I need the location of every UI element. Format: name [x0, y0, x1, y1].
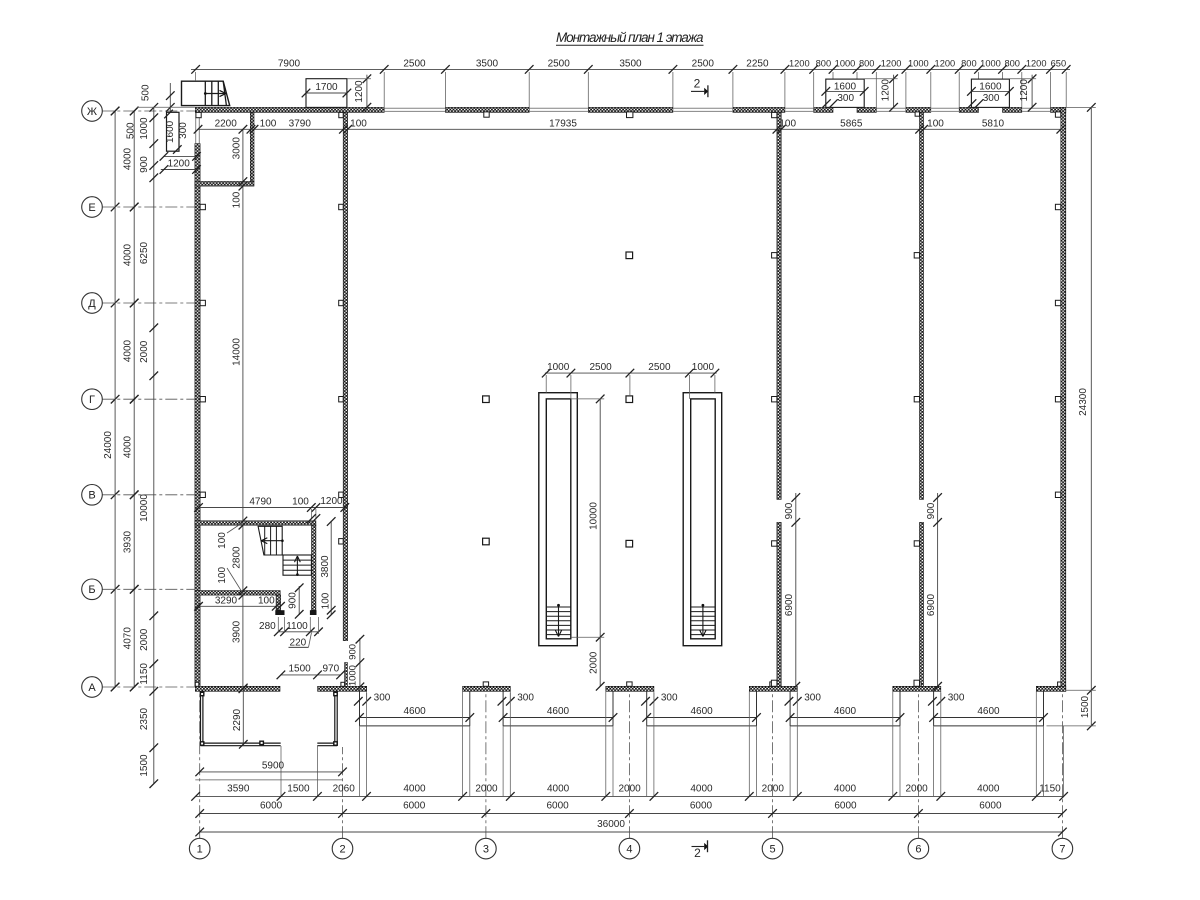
svg-text:1600: 1600	[979, 81, 1002, 92]
svg-text:2: 2	[694, 77, 701, 91]
svg-text:100: 100	[258, 595, 275, 606]
svg-text:3590: 3590	[227, 784, 250, 795]
svg-text:100: 100	[779, 118, 796, 129]
svg-text:Монтажный план 1 этажа: Монтажный план 1 этажа	[556, 30, 704, 45]
svg-text:100: 100	[292, 497, 309, 508]
svg-text:1200: 1200	[789, 58, 810, 68]
svg-text:2000: 2000	[139, 628, 150, 651]
svg-text:3930: 3930	[122, 530, 133, 553]
svg-text:800: 800	[961, 58, 977, 68]
svg-text:900: 900	[287, 592, 298, 609]
svg-text:3900: 3900	[232, 620, 243, 643]
svg-text:4000: 4000	[834, 784, 857, 795]
svg-text:500: 500	[126, 122, 137, 139]
svg-text:А: А	[88, 682, 96, 694]
svg-text:100: 100	[232, 191, 243, 208]
svg-text:14000: 14000	[232, 338, 243, 366]
svg-text:4600: 4600	[403, 706, 426, 717]
svg-text:4000: 4000	[122, 243, 133, 266]
svg-text:1000: 1000	[692, 362, 715, 373]
svg-text:970: 970	[322, 664, 339, 675]
svg-text:1200: 1200	[881, 79, 892, 102]
svg-text:6000: 6000	[979, 801, 1002, 812]
svg-text:6: 6	[915, 843, 921, 855]
svg-text:900: 900	[347, 644, 358, 660]
svg-text:2800: 2800	[232, 546, 243, 569]
svg-text:1500: 1500	[288, 664, 311, 675]
svg-text:1200: 1200	[881, 58, 902, 68]
svg-text:100: 100	[350, 118, 367, 129]
svg-text:4070: 4070	[122, 627, 133, 650]
svg-text:1200: 1200	[935, 58, 956, 68]
svg-text:1500: 1500	[1080, 695, 1091, 718]
svg-text:800: 800	[1004, 58, 1020, 68]
svg-text:300: 300	[517, 693, 534, 704]
svg-text:2000: 2000	[905, 784, 928, 795]
svg-text:1700: 1700	[315, 82, 338, 93]
svg-text:220: 220	[290, 637, 307, 648]
svg-text:3500: 3500	[619, 58, 642, 69]
svg-text:2500: 2500	[692, 58, 715, 69]
svg-text:5900: 5900	[262, 760, 285, 771]
svg-text:2500: 2500	[648, 362, 671, 373]
svg-text:4000: 4000	[403, 784, 426, 795]
svg-text:800: 800	[859, 58, 875, 68]
svg-text:100: 100	[260, 118, 277, 129]
svg-text:3: 3	[483, 843, 489, 855]
svg-text:1100: 1100	[286, 621, 308, 632]
svg-text:6000: 6000	[834, 801, 857, 812]
svg-text:4000: 4000	[977, 784, 1000, 795]
svg-text:2: 2	[339, 843, 345, 855]
svg-text:1500: 1500	[287, 784, 310, 795]
svg-text:Е: Е	[88, 202, 95, 214]
svg-text:100: 100	[320, 592, 331, 609]
svg-text:900: 900	[139, 156, 150, 173]
svg-text:2: 2	[694, 846, 701, 860]
svg-text:300: 300	[661, 693, 678, 704]
svg-text:4000: 4000	[690, 784, 713, 795]
svg-text:900: 900	[784, 502, 795, 519]
svg-text:4000: 4000	[122, 339, 133, 362]
svg-text:1600: 1600	[834, 81, 857, 92]
svg-text:10000: 10000	[588, 502, 599, 530]
svg-text:300: 300	[948, 693, 965, 704]
svg-text:1200: 1200	[320, 496, 343, 507]
svg-text:1200: 1200	[354, 80, 365, 103]
svg-text:3290: 3290	[215, 595, 238, 606]
svg-text:2500: 2500	[548, 58, 571, 69]
svg-text:280: 280	[259, 621, 276, 632]
svg-text:2000: 2000	[762, 784, 785, 795]
svg-text:1500: 1500	[139, 754, 150, 777]
svg-text:2000: 2000	[475, 784, 498, 795]
svg-text:4600: 4600	[690, 706, 713, 717]
svg-text:Г: Г	[89, 394, 95, 406]
svg-text:100: 100	[927, 118, 944, 129]
svg-text:900: 900	[926, 502, 937, 519]
svg-text:3500: 3500	[476, 58, 499, 69]
svg-text:3800: 3800	[320, 555, 331, 578]
svg-text:4: 4	[626, 843, 632, 855]
svg-text:300: 300	[837, 93, 854, 104]
svg-text:6000: 6000	[690, 801, 713, 812]
svg-text:7: 7	[1059, 843, 1065, 855]
svg-text:650: 650	[1051, 58, 1067, 68]
svg-text:6250: 6250	[139, 241, 150, 264]
svg-text:500: 500	[141, 84, 152, 101]
svg-text:4600: 4600	[977, 706, 1000, 717]
svg-text:1150: 1150	[1039, 784, 1061, 795]
svg-text:1000: 1000	[139, 117, 150, 140]
svg-text:4790: 4790	[249, 497, 272, 508]
svg-text:4600: 4600	[547, 706, 570, 717]
svg-text:1150: 1150	[139, 663, 150, 685]
svg-text:3000: 3000	[232, 137, 243, 160]
svg-text:1000: 1000	[347, 665, 358, 686]
svg-text:800: 800	[816, 58, 832, 68]
svg-text:3790: 3790	[289, 118, 312, 129]
svg-text:2060: 2060	[333, 784, 356, 795]
svg-text:6000: 6000	[546, 801, 569, 812]
svg-text:5810: 5810	[982, 118, 1005, 129]
svg-text:2000: 2000	[588, 651, 599, 674]
svg-text:36000: 36000	[597, 819, 625, 830]
svg-text:2350: 2350	[139, 707, 150, 730]
svg-text:24300: 24300	[1078, 388, 1089, 416]
svg-text:6900: 6900	[784, 593, 795, 616]
svg-text:В: В	[88, 490, 95, 502]
svg-text:Д: Д	[88, 298, 96, 310]
svg-text:2200: 2200	[215, 118, 238, 129]
svg-text:4600: 4600	[834, 706, 857, 717]
svg-text:1200: 1200	[1026, 58, 1047, 68]
svg-text:2290: 2290	[232, 708, 243, 731]
svg-text:Б: Б	[88, 584, 95, 596]
svg-text:1: 1	[197, 843, 203, 855]
svg-text:1600: 1600	[165, 120, 176, 143]
svg-text:1200: 1200	[168, 159, 191, 170]
svg-text:1000: 1000	[547, 362, 570, 373]
svg-text:2500: 2500	[403, 58, 426, 69]
svg-text:6000: 6000	[403, 801, 426, 812]
svg-text:1000: 1000	[908, 58, 929, 68]
svg-text:17935: 17935	[549, 118, 577, 129]
svg-text:4000: 4000	[122, 435, 133, 458]
svg-text:4000: 4000	[122, 147, 133, 170]
svg-text:300: 300	[374, 693, 391, 704]
svg-text:5: 5	[769, 843, 775, 855]
svg-text:10000: 10000	[139, 494, 150, 522]
svg-text:2250: 2250	[746, 58, 769, 69]
svg-text:6000: 6000	[260, 801, 283, 812]
svg-text:300: 300	[983, 93, 1000, 104]
svg-text:2000: 2000	[618, 784, 641, 795]
svg-text:300: 300	[178, 122, 189, 139]
svg-text:1000: 1000	[835, 58, 856, 68]
svg-text:7900: 7900	[278, 58, 301, 69]
svg-text:1000: 1000	[980, 58, 1001, 68]
svg-text:2500: 2500	[589, 362, 612, 373]
svg-text:6900: 6900	[926, 593, 937, 616]
svg-text:1200: 1200	[1019, 79, 1030, 102]
svg-text:100: 100	[217, 532, 228, 549]
svg-text:2000: 2000	[139, 340, 150, 363]
svg-text:Ж: Ж	[87, 106, 97, 118]
svg-text:4000: 4000	[547, 784, 570, 795]
svg-text:24000: 24000	[103, 431, 114, 459]
svg-text:300: 300	[804, 693, 821, 704]
svg-text:100: 100	[217, 567, 228, 584]
svg-text:5865: 5865	[840, 118, 863, 129]
